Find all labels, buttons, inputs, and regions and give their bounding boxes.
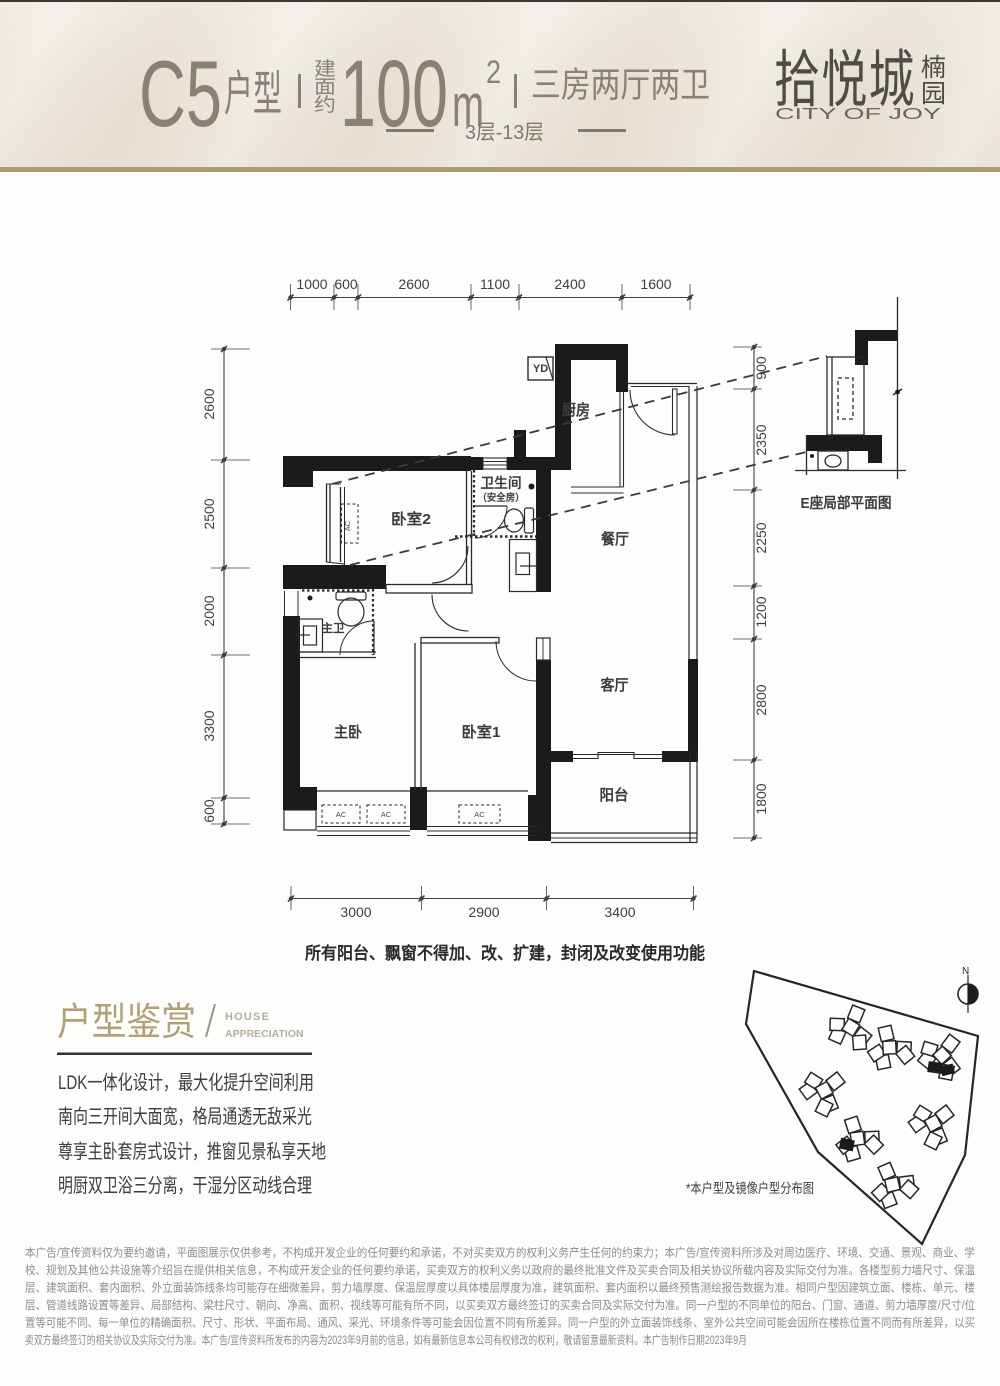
svg-text:所有阳台、飘窗不得加、改、扩建，封闭及改变使用功能: 所有阳台、飘窗不得加、改、扩建，封闭及改变使用功能 <box>305 943 705 963</box>
svg-text:本广告/宣传资料仅为要约邀请，平面图展示仅供参考，不构成开发: 本广告/宣传资料仅为要约邀请，平面图展示仅供参考，不构成开发企业的任何要约和承诺… <box>25 1246 975 1260</box>
svg-text:2250: 2250 <box>753 522 769 553</box>
svg-text:厨房: 厨房 <box>562 401 590 419</box>
svg-text:AC: AC <box>474 810 485 819</box>
svg-text:AC: AC <box>381 810 392 819</box>
svg-text:900: 900 <box>753 356 769 380</box>
svg-text:1800: 1800 <box>753 783 769 814</box>
svg-text:1000: 1000 <box>296 276 327 292</box>
svg-text:3300: 3300 <box>201 710 217 741</box>
svg-text:3000: 3000 <box>340 904 371 920</box>
svg-text:餐厅: 餐厅 <box>601 530 629 548</box>
svg-text:AC: AC <box>343 520 352 531</box>
svg-text:卖双方最终签订的相关协议及实际交付为准。本广告/宣传资料所发: 卖双方最终签订的相关协议及实际交付为准。本广告/宣传资料所发布的内容为2023年… <box>25 1333 747 1347</box>
svg-text:LDK一体化设计，最大化提升空间利用: LDK一体化设计，最大化提升空间利用 <box>58 1072 314 1094</box>
svg-text:2800: 2800 <box>753 684 769 715</box>
svg-text:AC: AC <box>336 810 347 819</box>
svg-text:HOUSE: HOUSE <box>225 1011 270 1023</box>
svg-text:校、规划及其他公共设施等介绍旨在提供相关信息，不构成开发企业: 校、规划及其他公共设施等介绍旨在提供相关信息，不构成开发企业的任何要约承诺，买卖… <box>25 1263 975 1277</box>
svg-text:南向三开间大面宽，格局通透无敌采光: 南向三开间大面宽，格局通透无敌采光 <box>58 1106 312 1128</box>
svg-text:卧室2: 卧室2 <box>391 510 431 528</box>
svg-text:3400: 3400 <box>604 904 635 920</box>
svg-text:1600: 1600 <box>640 276 671 292</box>
svg-text:卧室1: 卧室1 <box>462 723 501 741</box>
svg-text:户型鉴赏: 户型鉴赏 <box>57 1001 196 1044</box>
svg-text:客厅: 客厅 <box>600 676 629 694</box>
svg-text:2600: 2600 <box>398 276 429 292</box>
svg-text:2400: 2400 <box>554 276 585 292</box>
svg-text:1100: 1100 <box>480 276 510 292</box>
svg-text:置等可能不同、每一单位的精确面积、尺寸、形状、平面布局、通风: 置等可能不同、每一单位的精确面积、尺寸、形状、平面布局、通风、采光、环境条件等可… <box>25 1316 975 1330</box>
svg-text:2600: 2600 <box>201 388 217 419</box>
svg-text:主卫: 主卫 <box>322 621 345 635</box>
svg-text:主卧: 主卧 <box>334 723 362 741</box>
svg-text:（安全房）: （安全房） <box>478 491 525 504</box>
svg-text:1200: 1200 <box>753 596 769 627</box>
svg-text:YD: YD <box>533 363 548 375</box>
svg-text:阳台: 阳台 <box>600 786 629 804</box>
svg-text:2000: 2000 <box>201 595 217 626</box>
svg-text:APPRECIATION: APPRECIATION <box>225 1028 304 1040</box>
svg-text:2500: 2500 <box>201 498 217 529</box>
svg-text:明厨双卫浴三分离，干湿分区动线合理: 明厨双卫浴三分离，干湿分区动线合理 <box>58 1175 312 1197</box>
svg-text:2900: 2900 <box>468 904 499 920</box>
svg-text:尊享主卧套房式设计，推窗见景私享天地: 尊享主卧套房式设计，推窗见景私享天地 <box>58 1141 326 1163</box>
svg-text:600: 600 <box>334 276 358 292</box>
svg-text:层、建筑面积、套内面积、外立面装饰线条均可能存在细微差异，剪: 层、建筑面积、套内面积、外立面装饰线条均可能存在细微差异，剪力墙厚度、保温层厚度… <box>25 1281 975 1295</box>
svg-text:600: 600 <box>201 799 217 823</box>
svg-text:*本户型及镜像户型分布图: *本户型及镜像户型分布图 <box>686 1180 814 1196</box>
svg-text:E座局部平面图: E座局部平面图 <box>801 494 892 512</box>
svg-text:层、管道线路设置等差异、局部结构、梁柱尺寸、朝向、净高、面积: 层、管道线路设置等差异、局部结构、梁柱尺寸、朝向、净高、面积、视线等可能有所不同… <box>25 1298 975 1312</box>
svg-text:卫生间: 卫生间 <box>481 475 522 491</box>
svg-text:2350: 2350 <box>753 424 769 455</box>
